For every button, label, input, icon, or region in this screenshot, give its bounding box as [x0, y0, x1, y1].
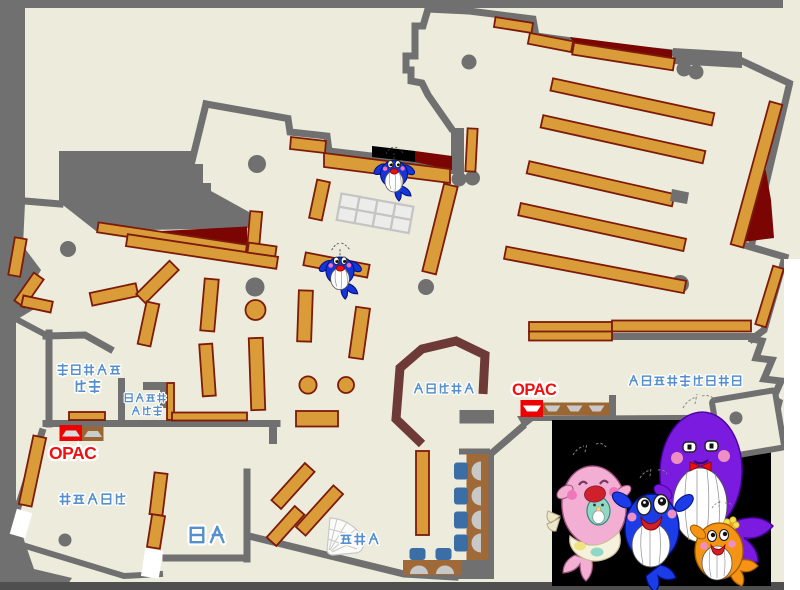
svg-text:OPAC: OPAC	[49, 443, 97, 463]
svg-text:OPAC: OPAC	[512, 381, 557, 399]
